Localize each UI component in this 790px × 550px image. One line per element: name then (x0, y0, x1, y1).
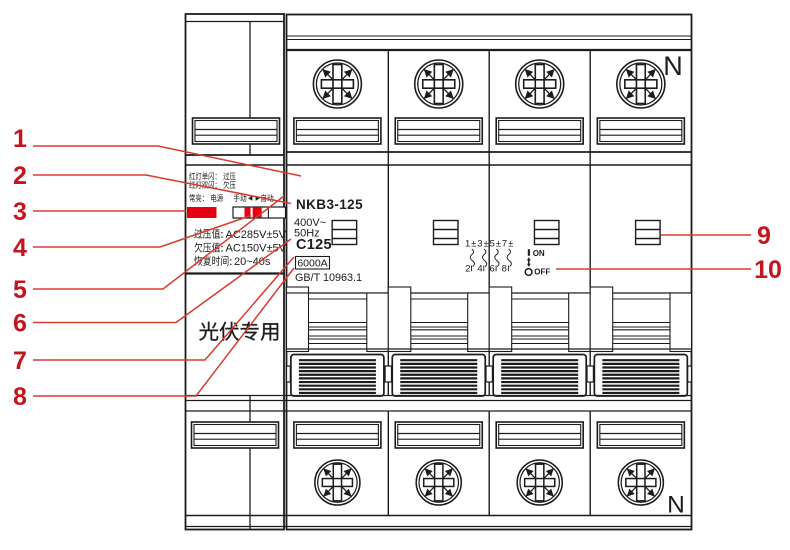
svg-text:4: 4 (13, 234, 27, 262)
svg-text:N: N (663, 51, 683, 81)
svg-text:NKB3-125: NKB3-125 (296, 197, 363, 212)
svg-text:OFF: OFF (534, 268, 550, 277)
svg-text:ON: ON (533, 249, 545, 258)
svg-text:6000A: 6000A (297, 257, 327, 269)
svg-text:5: 5 (13, 276, 27, 304)
svg-text:GB/T 10963.1: GB/T 10963.1 (295, 272, 362, 284)
svg-text:6: 6 (13, 310, 27, 338)
svg-text:C125: C125 (296, 237, 332, 253)
svg-text:N: N (667, 492, 685, 519)
svg-text:3: 3 (13, 198, 27, 226)
svg-text:1±3±5±7±: 1±3±5±7± (465, 238, 514, 249)
svg-text:1: 1 (13, 125, 27, 153)
svg-text:10: 10 (754, 256, 782, 284)
svg-text:2: 2 (13, 162, 27, 190)
svg-text:7: 7 (13, 347, 27, 375)
svg-text:9: 9 (757, 222, 771, 250)
svg-text:8: 8 (13, 383, 27, 411)
